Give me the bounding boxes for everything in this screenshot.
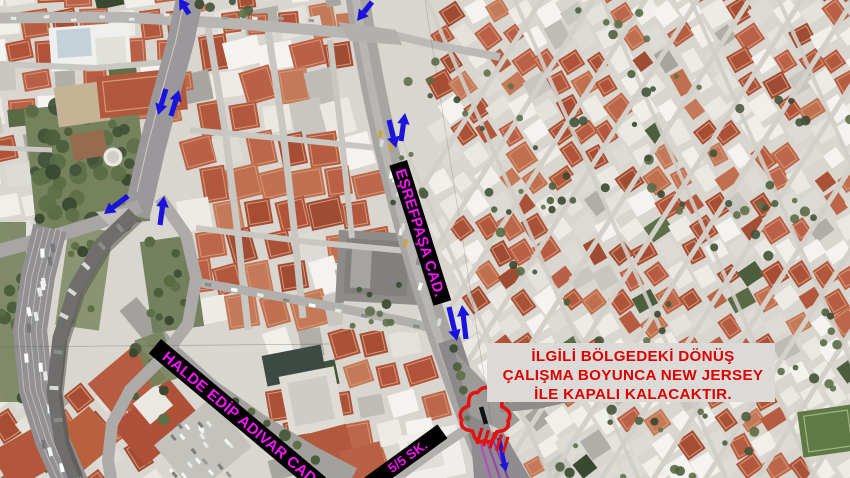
svg-text:İLGİLİ BÖLGEDEKİ DÖNÜŞ: İLGİLİ BÖLGEDEKİ DÖNÜŞ (531, 348, 734, 365)
svg-text:İLE KAPALI KALACAKTIR.: İLE KAPALI KALACAKTIR. (534, 386, 732, 403)
svg-text:ÇALIŞMA BOYUNCA NEW JERSEY: ÇALIŞMA BOYUNCA NEW JERSEY (503, 367, 764, 384)
